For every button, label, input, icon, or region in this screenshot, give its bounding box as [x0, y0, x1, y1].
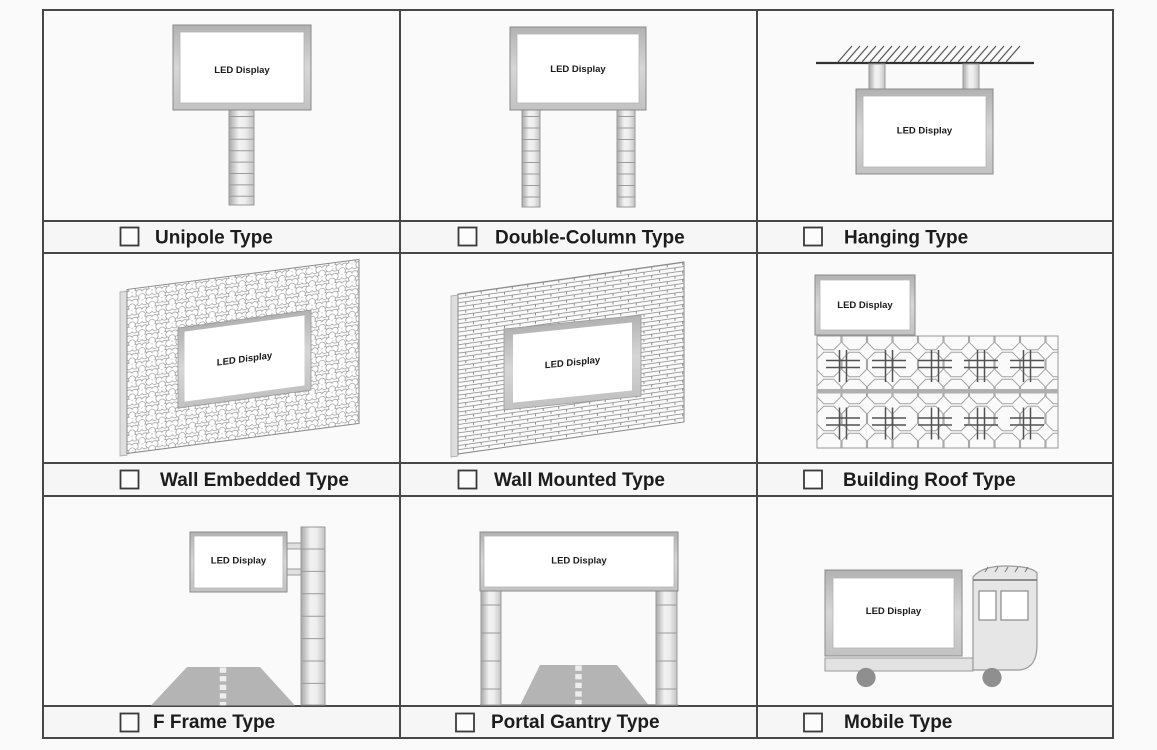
- svg-text:Mobile Type: Mobile Type: [844, 712, 952, 733]
- svg-text:F Frame Type: F Frame Type: [153, 712, 275, 733]
- svg-text:Unipole Type: Unipole Type: [155, 228, 273, 249]
- svg-text:Wall Embedded Type: Wall Embedded Type: [160, 470, 349, 491]
- svg-text:Hanging Type: Hanging Type: [844, 228, 968, 249]
- svg-text:LED Display: LED Display: [897, 126, 953, 137]
- svg-text:Wall Mounted Type: Wall Mounted Type: [494, 470, 665, 491]
- svg-text:LED Display: LED Display: [550, 64, 606, 75]
- svg-text:Portal Gantry Type: Portal Gantry Type: [491, 712, 660, 733]
- svg-text:LED Display: LED Display: [211, 555, 267, 566]
- svg-text:LED Display: LED Display: [837, 300, 893, 311]
- svg-text:Building Roof Type: Building Roof Type: [843, 470, 1016, 491]
- svg-text:LED Display: LED Display: [551, 555, 607, 566]
- svg-text:Double-Column Type: Double-Column Type: [495, 228, 685, 249]
- svg-text:LED Display: LED Display: [866, 606, 922, 617]
- svg-text:LED Display: LED Display: [214, 65, 270, 76]
